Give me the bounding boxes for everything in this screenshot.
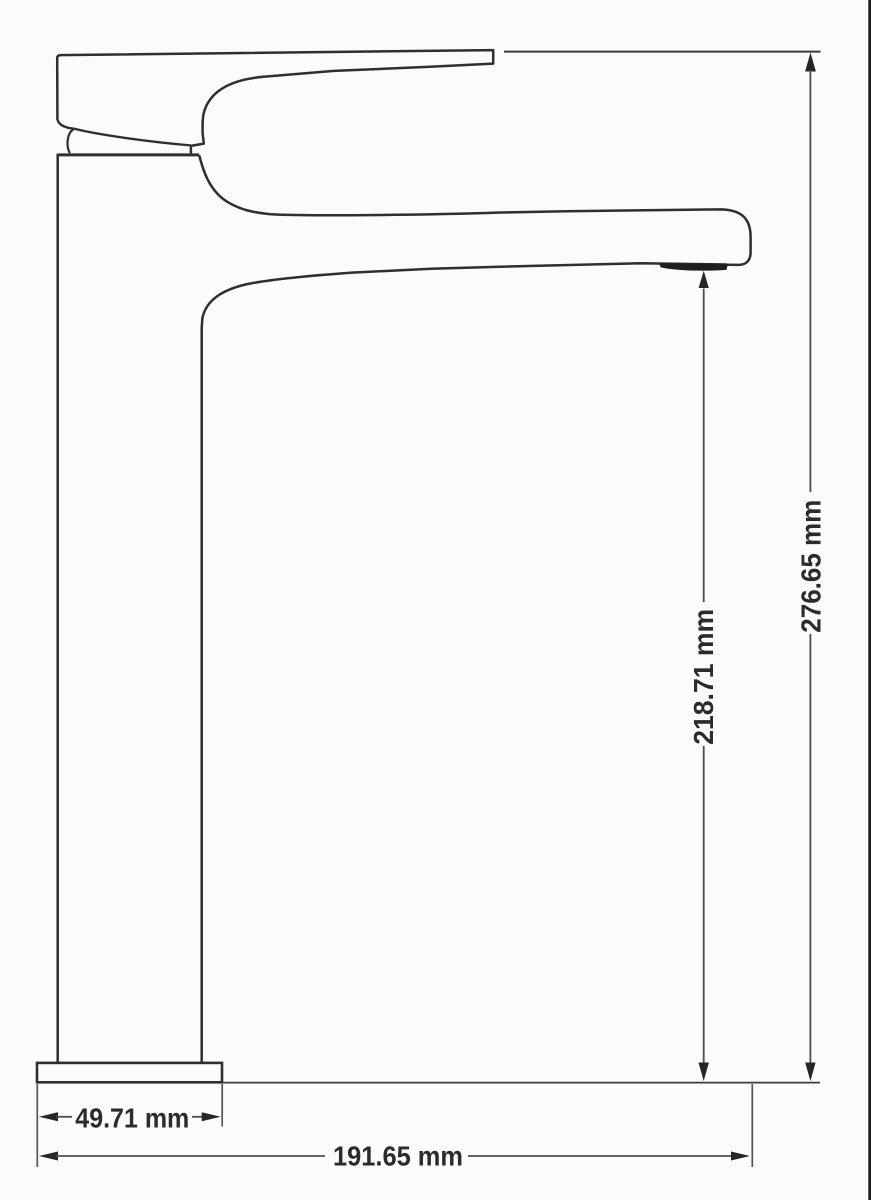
svg-text:191.65 mm: 191.65 mm <box>333 1140 463 1171</box>
svg-text:49.71 mm: 49.71 mm <box>75 1102 189 1133</box>
svg-text:276.65 mm: 276.65 mm <box>795 500 826 633</box>
svg-text:218.71 mm: 218.71 mm <box>688 609 719 745</box>
